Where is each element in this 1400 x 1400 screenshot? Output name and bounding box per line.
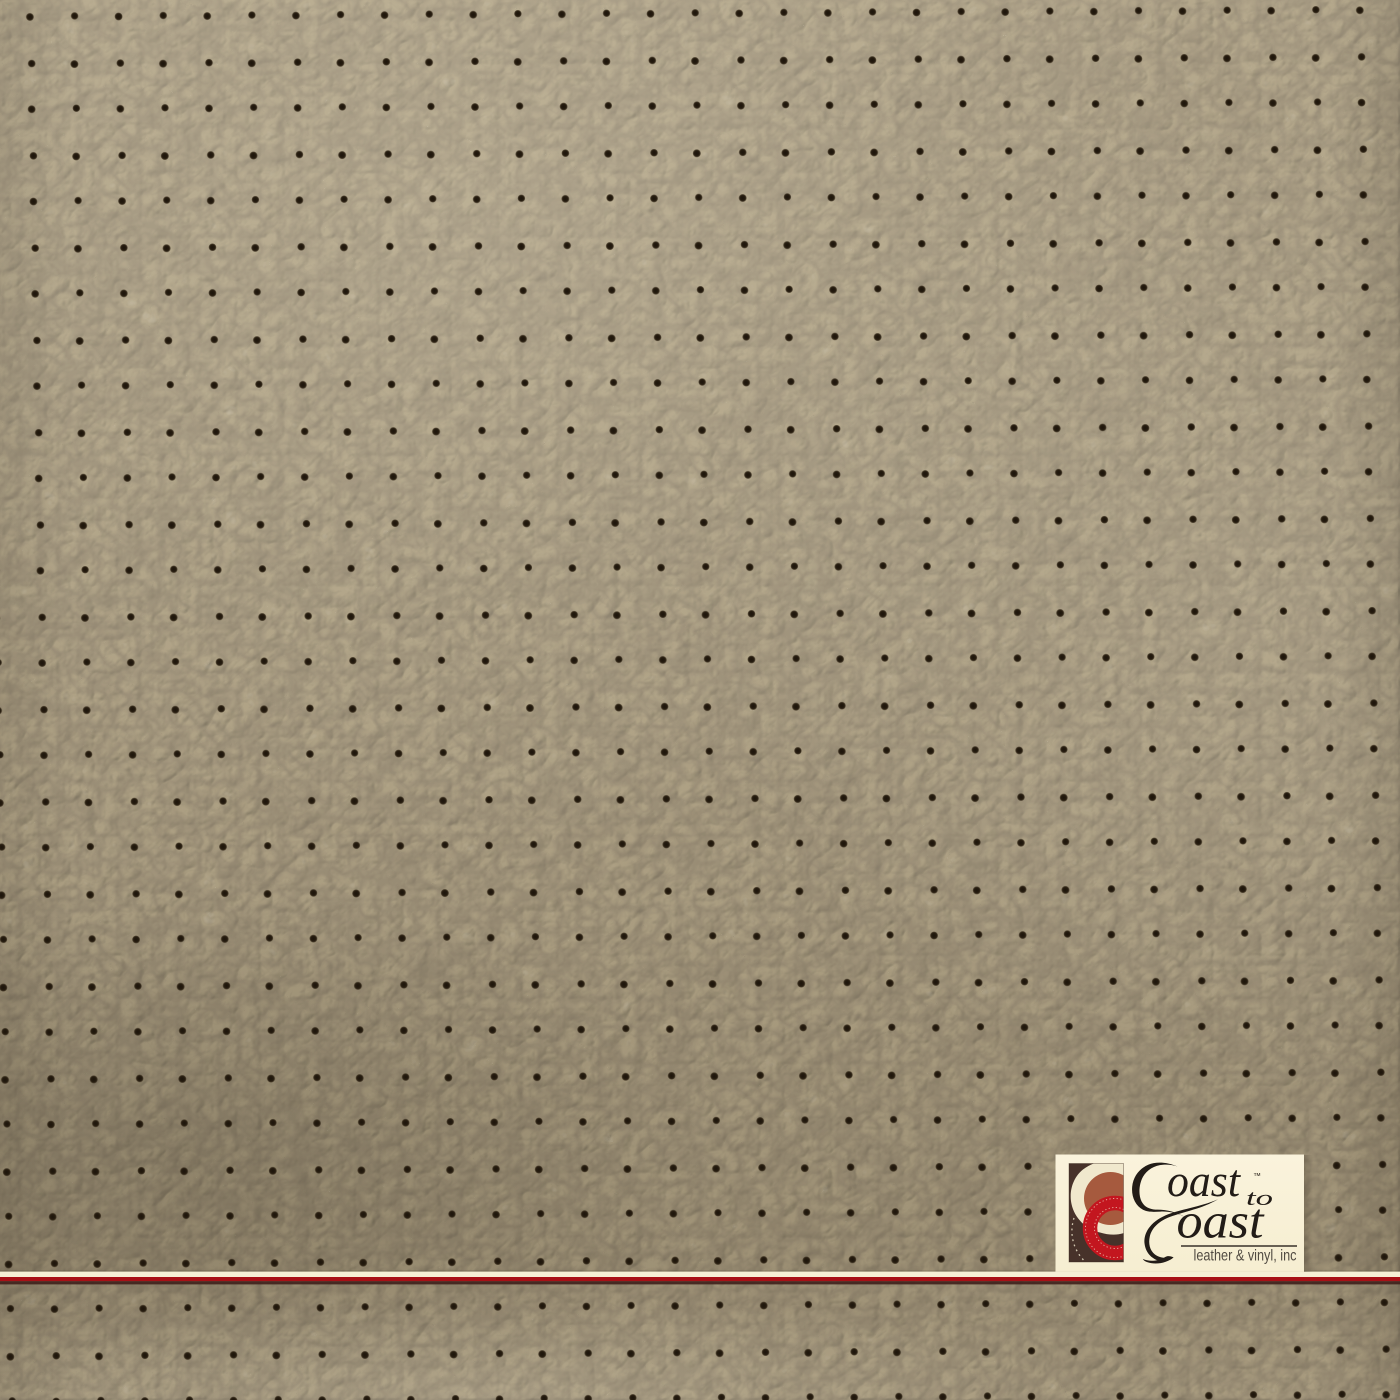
svg-text:™: ™: [1253, 1172, 1261, 1181]
svg-text:oast: oast: [1177, 1193, 1265, 1249]
svg-text:leather & vinyl, inc: leather & vinyl, inc: [1194, 1248, 1297, 1265]
